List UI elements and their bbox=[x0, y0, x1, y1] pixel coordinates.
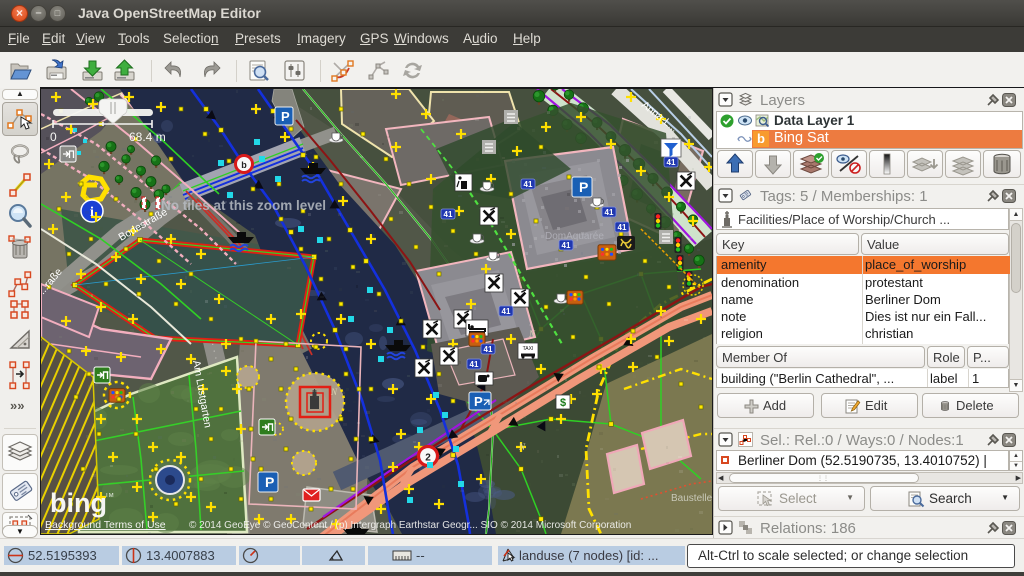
svg-text:b: b bbox=[241, 160, 247, 170]
svg-text:41: 41 bbox=[470, 360, 479, 369]
svg-text:41: 41 bbox=[524, 180, 533, 189]
svg-text:41: 41 bbox=[562, 241, 571, 250]
svg-text:$: $ bbox=[560, 397, 566, 409]
svg-text:DomAquarée: DomAquarée bbox=[545, 231, 604, 242]
svg-text:41: 41 bbox=[444, 210, 453, 219]
svg-text:TM: TM bbox=[105, 493, 114, 499]
svg-text:P: P bbox=[579, 179, 588, 195]
svg-text:N: N bbox=[528, 329, 536, 339]
svg-text:41: 41 bbox=[667, 158, 676, 167]
svg-text:41: 41 bbox=[502, 307, 511, 316]
svg-text:No tiles at this zoom level: No tiles at this zoom level bbox=[161, 198, 326, 213]
svg-text:P: P bbox=[474, 394, 483, 409]
svg-text:41: 41 bbox=[484, 345, 493, 354]
svg-text:41: 41 bbox=[605, 208, 614, 217]
svg-text:© 2014 GeoEye © GeoContent / (: © 2014 GeoEye © GeoContent / (p) Intergr… bbox=[189, 520, 631, 531]
svg-text:P: P bbox=[281, 109, 290, 124]
svg-text:2: 2 bbox=[425, 453, 431, 464]
svg-text:Background Terms of Use: Background Terms of Use bbox=[45, 519, 166, 531]
svg-text:N: N bbox=[330, 387, 338, 397]
svg-text:Baustelle: Baustelle bbox=[671, 493, 712, 504]
svg-text:N: N bbox=[518, 442, 526, 452]
svg-text:bing: bing bbox=[50, 488, 107, 518]
svg-text:41: 41 bbox=[618, 223, 627, 232]
svg-text:0: 0 bbox=[50, 130, 57, 144]
svg-text:TAXI: TAXI bbox=[523, 346, 534, 352]
svg-text:68.4 m: 68.4 m bbox=[129, 130, 166, 144]
